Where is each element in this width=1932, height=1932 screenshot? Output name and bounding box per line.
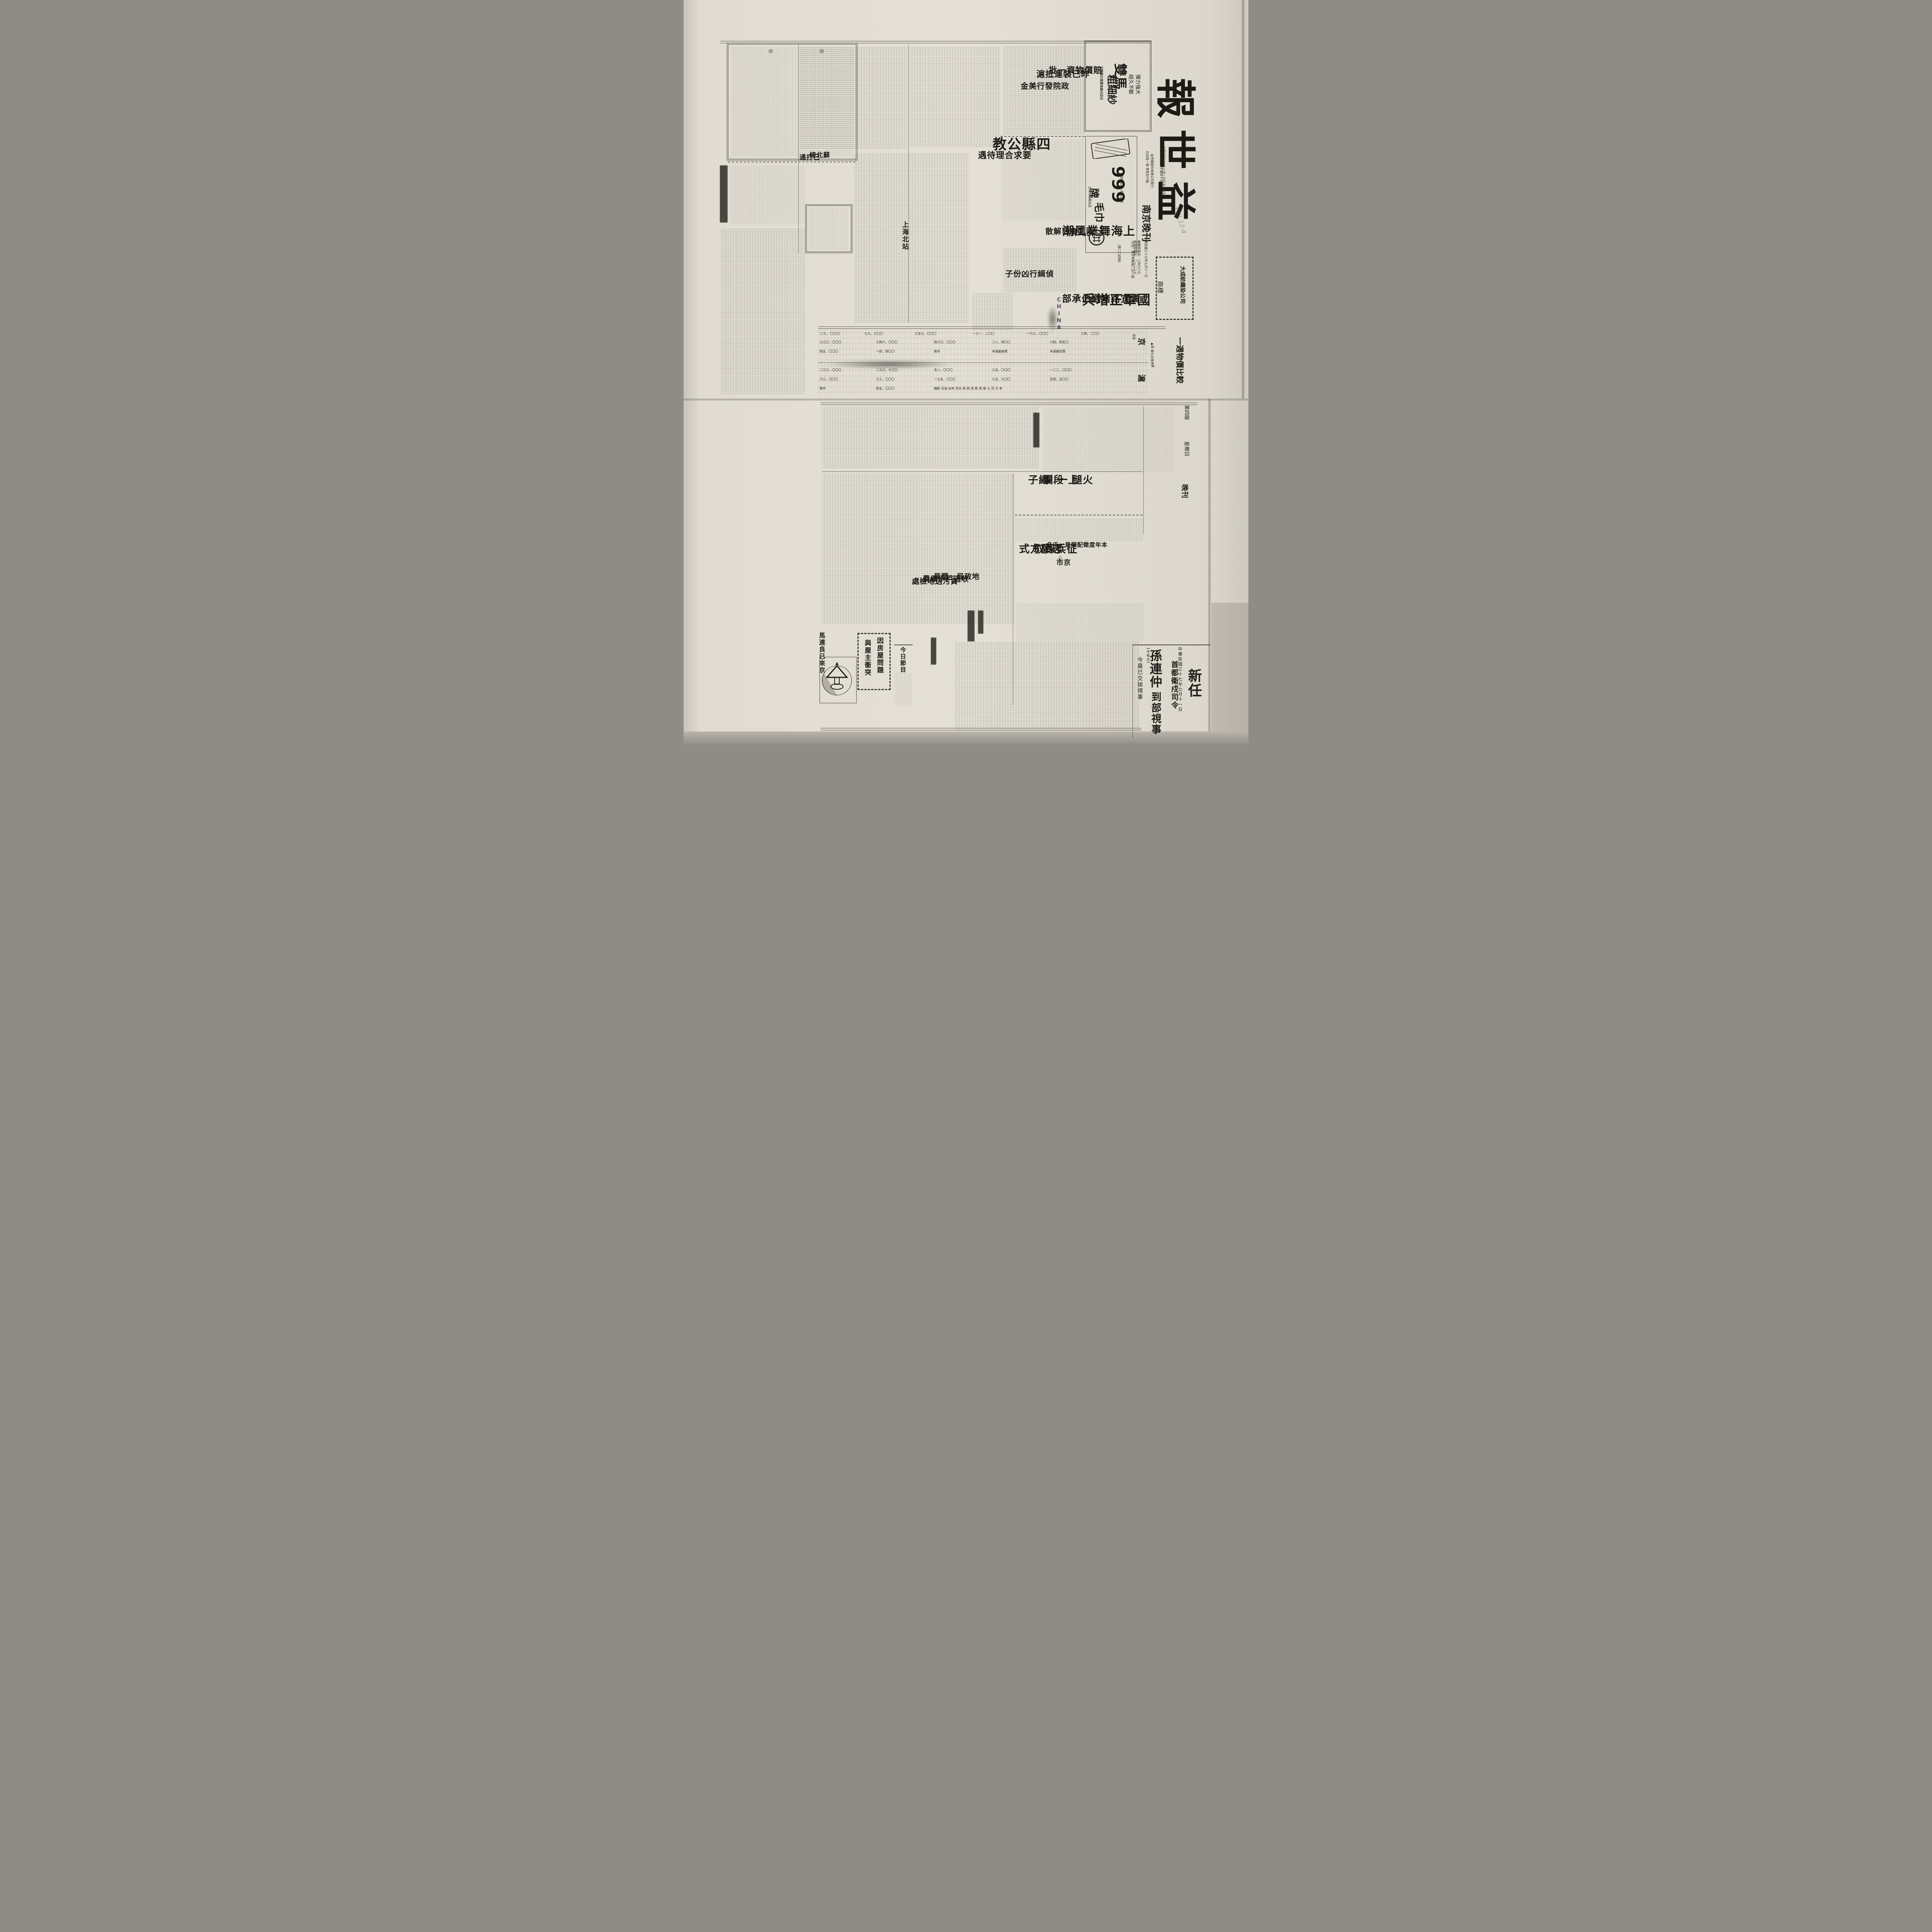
- price-table-title: 一週物價比較: [1175, 337, 1186, 384]
- sun-main2: 到部視事: [1150, 692, 1160, 735]
- dateline-top: 中華民國三十七年七月十一日: [1143, 237, 1148, 277]
- tr-j7: 三四六、〇〇〇: [876, 340, 898, 345]
- issue-line: 日出版一張 零售四千圓: [1145, 151, 1149, 183]
- publisher-line: 益世報股份有限公司發行: [1150, 154, 1154, 188]
- bottom-texture-2: [1043, 406, 1174, 472]
- issue-no: (第二〇四號): [1117, 245, 1121, 262]
- headline-unread-1: [968, 611, 975, 641]
- headline-unread-2: [978, 611, 983, 634]
- pay-story-texture: [1002, 46, 1084, 134]
- bottom-col-rule-1: [1013, 473, 1013, 705]
- bottom-texture-4: [1016, 603, 1143, 641]
- bottom-page-top-border: [821, 403, 1197, 405]
- agency-tag: 【本報訊】: [1146, 646, 1150, 665]
- edition-label: 南京晚刊: [1141, 205, 1154, 242]
- bottom-col-rule-2: [1143, 406, 1144, 534]
- ad-999-tagline: 質料高貴・經久耐用: [1119, 175, 1124, 203]
- tr-j4: 一六三、〇〇〇: [1027, 332, 1048, 336]
- tr-nm1: 無市: [934, 349, 940, 354]
- tr-h11: 四五、〇〇〇: [876, 386, 895, 391]
- address-line: 社址：南京林森路二五八號: [1130, 241, 1135, 278]
- ad-shuangma-slogan2: 經久不斷: [1128, 74, 1135, 94]
- tr-h9: 五四、五〇〇: [1050, 377, 1068, 382]
- editorial-bullet-1: ◎: [769, 48, 773, 54]
- tr-h0: 二三〇、〇〇〇: [820, 368, 841, 372]
- sun-sub: 今晨已交接視事: [1137, 657, 1143, 700]
- tr-h3: 三五、〇〇〇: [992, 368, 1010, 372]
- tr-h6: 三三、〇〇〇: [876, 377, 895, 382]
- vertical-fold-crease-top: [1241, 0, 1245, 399]
- mid-right-texture: [1001, 139, 1084, 220]
- bottom-texture-1: [822, 406, 1038, 468]
- program-listing: 今日節目: [894, 645, 913, 706]
- tr-j5: 三四、二〇〇: [1081, 332, 1099, 336]
- ad-shuangma: 雙馬 粗細紗 彈力強大 經久不斷 申新紡織第九廠出品 管理處：江西路四一〇號: [1085, 42, 1150, 131]
- tr-j2: 三五七、〇〇〇: [915, 332, 936, 336]
- masthead-title: 報 世 益: [1150, 77, 1201, 259]
- ad-dacheng: 大成紡織染公司 商標: [1156, 257, 1194, 320]
- ad-shuangma-brand-bottom: 粗細紗: [1105, 74, 1120, 104]
- program-header: 今日節目: [900, 647, 906, 673]
- pay-bottom-rule: [1000, 136, 1085, 137]
- tr-j11: 四五、〇〇〇: [820, 349, 838, 354]
- tr-j10: 六四、四五〇: [1050, 340, 1068, 345]
- centre-columns-texture-1: [799, 46, 908, 149]
- price-table-body: 京 滬 貨名 二九、〇〇〇 七九、三〇〇 三五七、〇〇〇 一三一、二〇〇 一六三…: [818, 329, 1148, 397]
- mid-left-box-texture: [808, 207, 849, 249]
- oil-lamp-illustration: [820, 657, 856, 703]
- column-rule-1: [908, 44, 909, 323]
- tr-h7: 一七五、〇〇〇: [934, 377, 956, 382]
- maker-seal: [1088, 229, 1105, 246]
- tr-h10: 無市: [820, 386, 826, 391]
- guojun-side-texture: [971, 293, 1013, 330]
- table-section-hu: 滬: [1137, 374, 1148, 382]
- table-section-jing: 京: [1137, 338, 1148, 346]
- tr-cl: 本週最低價: [1050, 349, 1065, 354]
- table-name-header: 貨名: [1131, 334, 1136, 340]
- sun-kicker: 新任: [1186, 668, 1201, 698]
- headline-unread-3: [1033, 413, 1039, 447]
- tr-j9: 二八、四〇〇: [992, 340, 1010, 345]
- program-rows-texture: [894, 672, 913, 706]
- ad-dacheng-label: 商標: [1156, 281, 1165, 293]
- centre-columns-texture-2: [854, 153, 969, 323]
- classified-bold-strip: [720, 165, 728, 223]
- land-line3: 貪污送地檢處: [911, 577, 957, 585]
- tr-h5: 六三、〇〇〇: [820, 377, 838, 382]
- column-rule-2: [798, 44, 799, 253]
- lamp-cartoon-box: [820, 657, 857, 703]
- masthead-char-yi: 益: [1150, 181, 1201, 231]
- mid-left-news-box: [806, 206, 851, 252]
- horizontal-fold-crease: [684, 398, 1248, 401]
- tr-h2: 五八、〇〇〇: [934, 368, 952, 372]
- bottom-page-header: 第四版 星期日 晚刊: [1178, 405, 1190, 505]
- price-table-legend-up: ▲漲: [1150, 343, 1155, 348]
- ad-shuangma-office: 管理處：江西路四一〇號: [1099, 66, 1104, 100]
- headline-sun-block: 中華民國三十七年七月十一日 新任 首都衛戍司令 孫連仲 到部視事 今晨已交接視事: [1133, 645, 1210, 738]
- ad-999-product: 毛巾: [1093, 202, 1107, 222]
- bottom-rule-h1: [822, 471, 1143, 472]
- table-commodities: 糆粉 豆油 白布 月白 馬 明 金 斯 皂 柴 火 司 力 本: [934, 386, 1002, 391]
- house-line1: 因房屋問題: [876, 637, 883, 674]
- ham-bottom-rule: [1015, 515, 1143, 515]
- headline-beizhan: 上海北站: [901, 221, 908, 250]
- towel-illustration: [1089, 139, 1132, 159]
- tr-j3: 一三一、二〇〇: [973, 332, 994, 336]
- tr-j6: 三三〇、〇〇〇: [820, 340, 841, 345]
- house-line2: 與屋主衝突: [863, 639, 870, 676]
- price-table-header: 一週物價比較 ▲漲 ×跌 單位法幣元: [1150, 328, 1183, 398]
- editorial-bottom-rule: [728, 162, 855, 162]
- underlying-sheet-shadow: [1211, 603, 1248, 745]
- ham-col4: 繩子: [1027, 474, 1048, 485]
- sun-kicker2: 首都衛戍司令: [1170, 661, 1178, 709]
- weekday-label: 星期日: [1184, 441, 1191, 456]
- ad-999-maker: 上海棉織廠出品: [1087, 186, 1092, 207]
- tr-j12: 一四、四〇〇: [876, 349, 895, 354]
- wuchao-story-texture: [1003, 247, 1076, 292]
- ad-shuangma-slogan1: 彈力強大: [1135, 74, 1142, 94]
- ad-999-numerals: 999: [1108, 166, 1128, 204]
- left-columns-texture: [720, 228, 805, 394]
- ham-story-texture: [1015, 518, 1143, 541]
- sun-main: 孫連仲: [1148, 649, 1162, 689]
- centre-columns-texture-3: [910, 46, 1000, 147]
- left-columns-texture-2: [730, 165, 805, 223]
- headline-house-box: 因房屋問題 與屋主衝突: [857, 633, 891, 690]
- page-number: 第四版: [1184, 405, 1191, 420]
- tr-h4: 一二二、〇〇〇: [1050, 368, 1071, 372]
- masthead-char-shi: 世: [1150, 129, 1201, 180]
- headline-unread-4: [931, 638, 936, 665]
- table-top-rule: [818, 327, 1166, 329]
- tr-j8: 四六〇、〇〇〇: [934, 340, 956, 345]
- newspaper-scan: ◎ ◎ 蘇北線 已打通 上海北站 四縣公教 要求合理待遇 賠償物資一批 昨已裝運…: [684, 0, 1248, 745]
- bottom-page-bottom-border: [821, 728, 1141, 730]
- founded-line: 中華民國卅四年十月一日在天津創刊: [1161, 146, 1166, 196]
- conscript-kicker2: 京市: [1055, 559, 1070, 566]
- edition-label-bottom: 晚刊: [1180, 484, 1190, 498]
- tr-j1: 七九、三〇〇: [864, 332, 883, 336]
- conscript-main2: 志願方式: [1017, 543, 1061, 554]
- tr-h8: 七五、九〇〇: [992, 377, 1010, 382]
- price-table-unit: 單位法幣元: [1150, 349, 1154, 365]
- ad-dacheng-company: 大成紡織染公司: [1179, 266, 1187, 304]
- bottom-texture-3: [822, 473, 1015, 624]
- bottom-texture-5: [954, 641, 1139, 730]
- masthead-char-bao: 報: [1150, 78, 1201, 128]
- headline-datong-col2: 已打通: [798, 154, 819, 161]
- tr-ch: 本週最高價: [992, 349, 1007, 354]
- tr-h1: 二九〇、七〇〇: [876, 368, 898, 372]
- contact-block: 中華民國三十七年七月十一日 編輯部電話：二四六〇九 經理部電話：二一二八七 社址…: [1122, 232, 1133, 325]
